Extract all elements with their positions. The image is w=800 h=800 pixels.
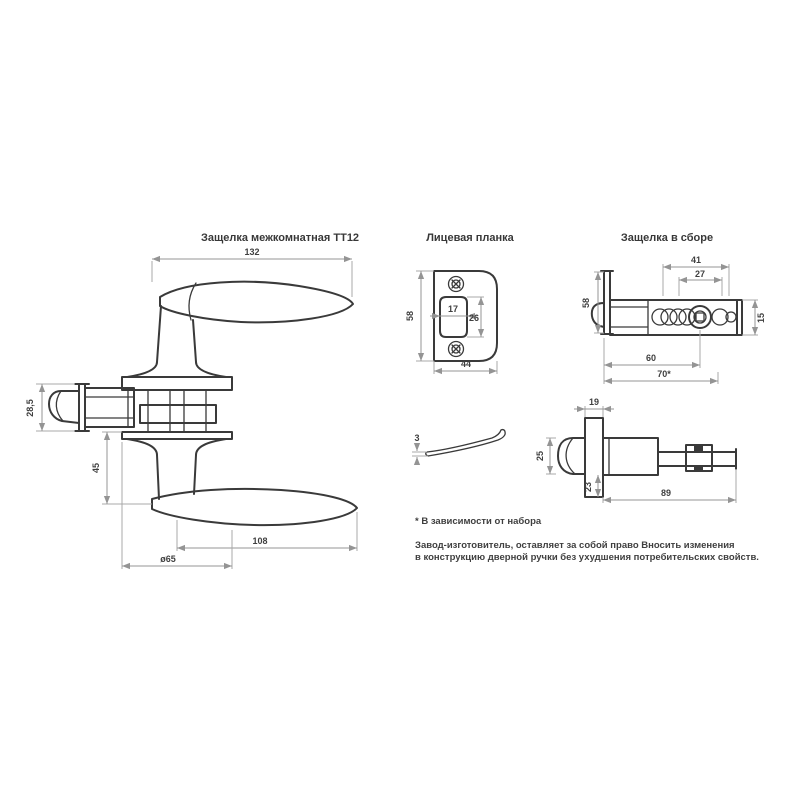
faceplate-front-view: Лицевая планка 17 26 44 58 [405, 232, 515, 374]
asterisk-note: * В зависимости от набора [415, 516, 542, 527]
rosette-bell [196, 362, 226, 377]
dim-overall-latch-length: 89 [661, 488, 671, 498]
handle-view-title: Защелка межкомнатная ТТ12 [201, 232, 359, 244]
spindle-hub [689, 306, 711, 328]
dim-hub-section: 41 [691, 255, 701, 265]
plate-profile [426, 430, 505, 456]
lower-lever [152, 489, 357, 525]
latch-bolt-bevel [566, 438, 575, 474]
faceplate-profile-view: 3 [412, 430, 505, 464]
neck-line [157, 455, 159, 499]
notes-block: * В зависимости от набора Завод-изготови… [415, 516, 759, 563]
drawing-canvas: Защелка межкомнатная ТТ12 132 [0, 0, 800, 800]
dim-opening-height: 26 [469, 313, 479, 323]
spindle-slot [694, 465, 703, 471]
latch-bolt-top [558, 438, 585, 474]
latch-case [85, 388, 134, 427]
dim-backset-alt: 70* [657, 369, 671, 379]
follower-hub [140, 405, 216, 423]
rosette-ring [122, 377, 232, 390]
dim-plate-height: 58 [405, 311, 415, 321]
latch-case-top [603, 438, 658, 475]
disclaimer-line-2: в конструкцию дверной ручки без ухудшени… [415, 552, 759, 563]
technical-drawing-page: Защелка межкомнатная ТТ12 132 [0, 0, 800, 800]
dim-plate-width: 44 [461, 359, 471, 369]
spindle-slot [694, 446, 703, 452]
latch-assembly-side-view: Защелка в сборе 41 27 15 [581, 232, 766, 384]
dim-overall-length: 132 [244, 247, 259, 257]
neck-line [193, 320, 196, 362]
disclaimer-line-1: Завод-изготовитель, оставляет за собой п… [415, 540, 735, 551]
dim-case-height: 23 [583, 482, 593, 492]
dim-neck-offset: 45 [91, 463, 101, 473]
spindle-screws [148, 390, 206, 432]
dim-plate-height: 58 [581, 298, 591, 308]
dim-lever-length: 108 [252, 536, 267, 546]
dim-opening-width: 17 [448, 304, 458, 314]
rosette-ring [122, 432, 232, 439]
neck-line [194, 455, 196, 494]
screw-hole-hatch [452, 280, 460, 288]
bolt-tail [610, 300, 648, 335]
latch-opening [440, 297, 467, 337]
latch-bolt-bevel [56, 391, 63, 421]
latch-body [610, 300, 742, 335]
faceplate-view-title: Лицевая планка [426, 232, 514, 244]
rosette-bell [127, 439, 157, 455]
latch-bolt [49, 391, 79, 423]
latch-view-title: Защелка в сборе [621, 232, 713, 244]
latch-case-detail [85, 388, 134, 427]
dim-spindle-section: 27 [695, 269, 705, 279]
rosette-bell [196, 439, 226, 455]
dim-rose-diameter: ø65 [160, 554, 176, 564]
neck-line [157, 306, 161, 362]
spring-coil [679, 309, 695, 325]
handle-section-view: Защелка межкомнатная ТТ12 132 [25, 232, 359, 569]
dim-backset: 60 [646, 353, 656, 363]
dim-plate-thickness: 3 [414, 433, 419, 443]
latch-assembly-top-view: 19 25 23 89 [535, 397, 736, 503]
dim-body-height: 15 [756, 313, 766, 323]
dim-plate-edge: 19 [589, 397, 599, 407]
dim-bolt-width: 25 [535, 451, 545, 461]
dim-latch-height: 28,5 [25, 399, 35, 417]
lever-neck-joint [189, 283, 196, 320]
spring-coil [652, 309, 668, 325]
rosette-bell [127, 362, 157, 377]
screw-hole-hatch [452, 345, 460, 353]
spring-coil [670, 309, 686, 325]
spindle-square-hole [696, 313, 704, 321]
spring-coil [661, 309, 677, 325]
